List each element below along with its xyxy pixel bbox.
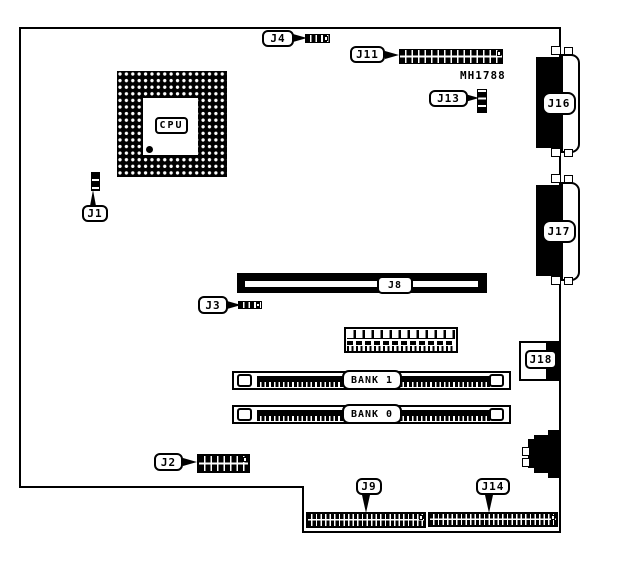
j8-slot-channel (245, 281, 478, 287)
j17-label: J17 (542, 220, 576, 243)
j9-pin1-marker (419, 515, 423, 520)
j9-leader (362, 495, 370, 513)
power-connector-contacts-row (347, 341, 455, 345)
bank0-latch-right (489, 408, 504, 421)
j2-pin1-marker (243, 457, 247, 462)
j16-mount-tab-top-right (564, 47, 573, 55)
j8-label: J8 (377, 276, 413, 294)
power-connector (344, 327, 458, 353)
part-number: MH1788 (460, 69, 506, 82)
j16-mount-tab-bottom-right (564, 149, 573, 157)
j16-mount-tab-bottom-left (551, 148, 561, 157)
bank1-latch-right (489, 374, 504, 387)
power-connector-housing-row (347, 330, 455, 339)
j14-pin1-marker (551, 515, 555, 520)
j3-label: J3 (198, 296, 228, 314)
cpu-pin1-dot (146, 146, 153, 153)
j11-leader (385, 51, 399, 59)
j9-connector (306, 512, 426, 528)
bank0-label: BANK 0 (342, 404, 402, 424)
j1-label: J1 (82, 205, 108, 222)
keyboard-din-pin-bottom (522, 458, 530, 467)
j8-slot (237, 273, 487, 293)
j2-label: J2 (154, 453, 183, 471)
j17-mount-tab-bottom-left (551, 276, 561, 285)
j11-pin1-marker (497, 51, 501, 56)
j14-label: J14 (476, 478, 510, 495)
j17-mount-tab-bottom-right (564, 277, 573, 285)
keyboard-din-pin-top (522, 447, 530, 456)
j4-leader (293, 34, 307, 42)
motherboard-diagram: CPU J1 J4 J11 MH1788 J13 J16 J17 J8 J3 (0, 0, 625, 588)
j11-connector (399, 49, 503, 64)
bank0-latch-left (237, 408, 252, 421)
j9-label: J9 (356, 478, 382, 495)
j16-label: J16 (542, 92, 576, 115)
j18-label: J18 (525, 350, 557, 369)
j2-leader (183, 458, 197, 466)
j1-leader (90, 190, 96, 206)
cpu-label: CPU (155, 117, 188, 134)
j2-connector (197, 454, 250, 473)
j14-leader (485, 495, 493, 513)
j11-label: J11 (350, 46, 385, 63)
j13-label: J13 (429, 90, 468, 107)
j16-mount-tab-top-left (551, 46, 561, 55)
j17-mount-tab-top-left (551, 174, 561, 183)
j17-mount-tab-top-right (564, 175, 573, 183)
board-outline (0, 0, 625, 588)
j1-connector (91, 172, 100, 191)
j3-leader (227, 301, 241, 309)
bank1-latch-left (237, 374, 252, 387)
j14-connector (428, 512, 558, 527)
bank1-label: BANK 1 (342, 370, 402, 390)
power-connector-pins-row (347, 346, 455, 351)
j4-label: J4 (262, 30, 294, 47)
